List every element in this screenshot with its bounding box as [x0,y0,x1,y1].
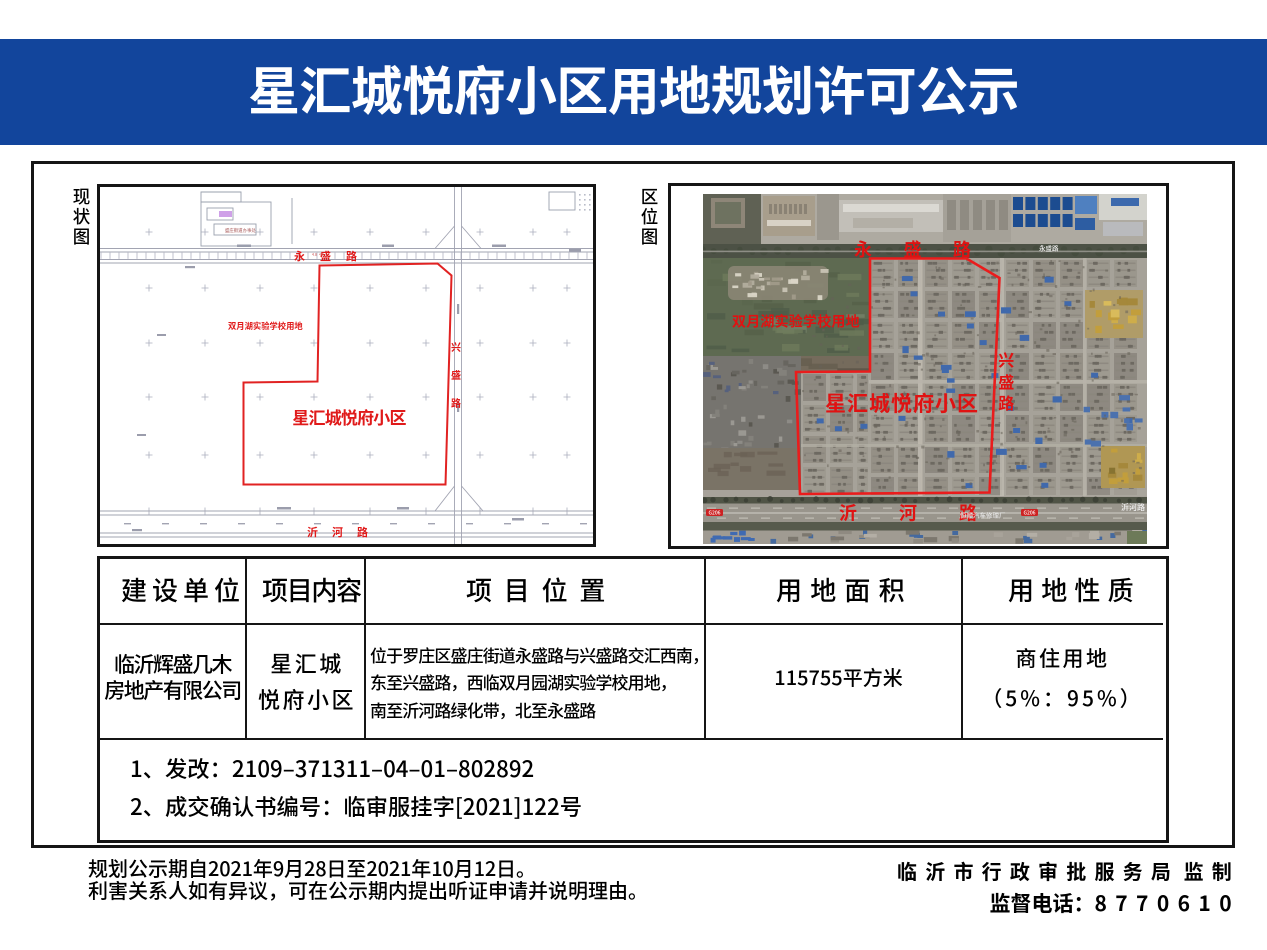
svg-text:沂河路: 沂河路 [307,524,382,540]
svg-text:恒顺汽车修理厂: 恒顺汽车修理厂 [960,509,1006,519]
svg-text:G206: G206 [708,509,720,516]
svg-text:盛: 盛 [451,367,461,382]
svg-text:G206: G206 [1023,509,1035,516]
svg-text:双月湖实验学校用地: 双月湖实验学校用地 [732,311,860,331]
svg-text:路: 路 [998,390,1014,414]
svg-text:路: 路 [451,395,461,410]
svg-text:双月湖实验学校用地: 双月湖实验学校用地 [228,320,303,332]
svg-text:永盛路: 永盛路 [854,236,1003,262]
svg-text:星汇城悦府小区: 星汇城悦府小区 [825,388,979,418]
svg-text:兴: 兴 [451,339,461,354]
svg-text:永盛路: 永盛路 [294,248,372,264]
svg-text:永盛路: 永盛路 [1039,242,1059,252]
svg-text:4.8: 4.8 [319,253,324,258]
svg-text:兴: 兴 [998,347,1014,371]
svg-text:4.8: 4.8 [312,253,317,258]
svg-text:沂河路: 沂河路 [1121,502,1145,513]
svg-text:星汇城悦府小区: 星汇城悦府小区 [292,404,406,429]
svg-text:盛庄街道办事处: 盛庄街道办事处 [225,227,256,234]
